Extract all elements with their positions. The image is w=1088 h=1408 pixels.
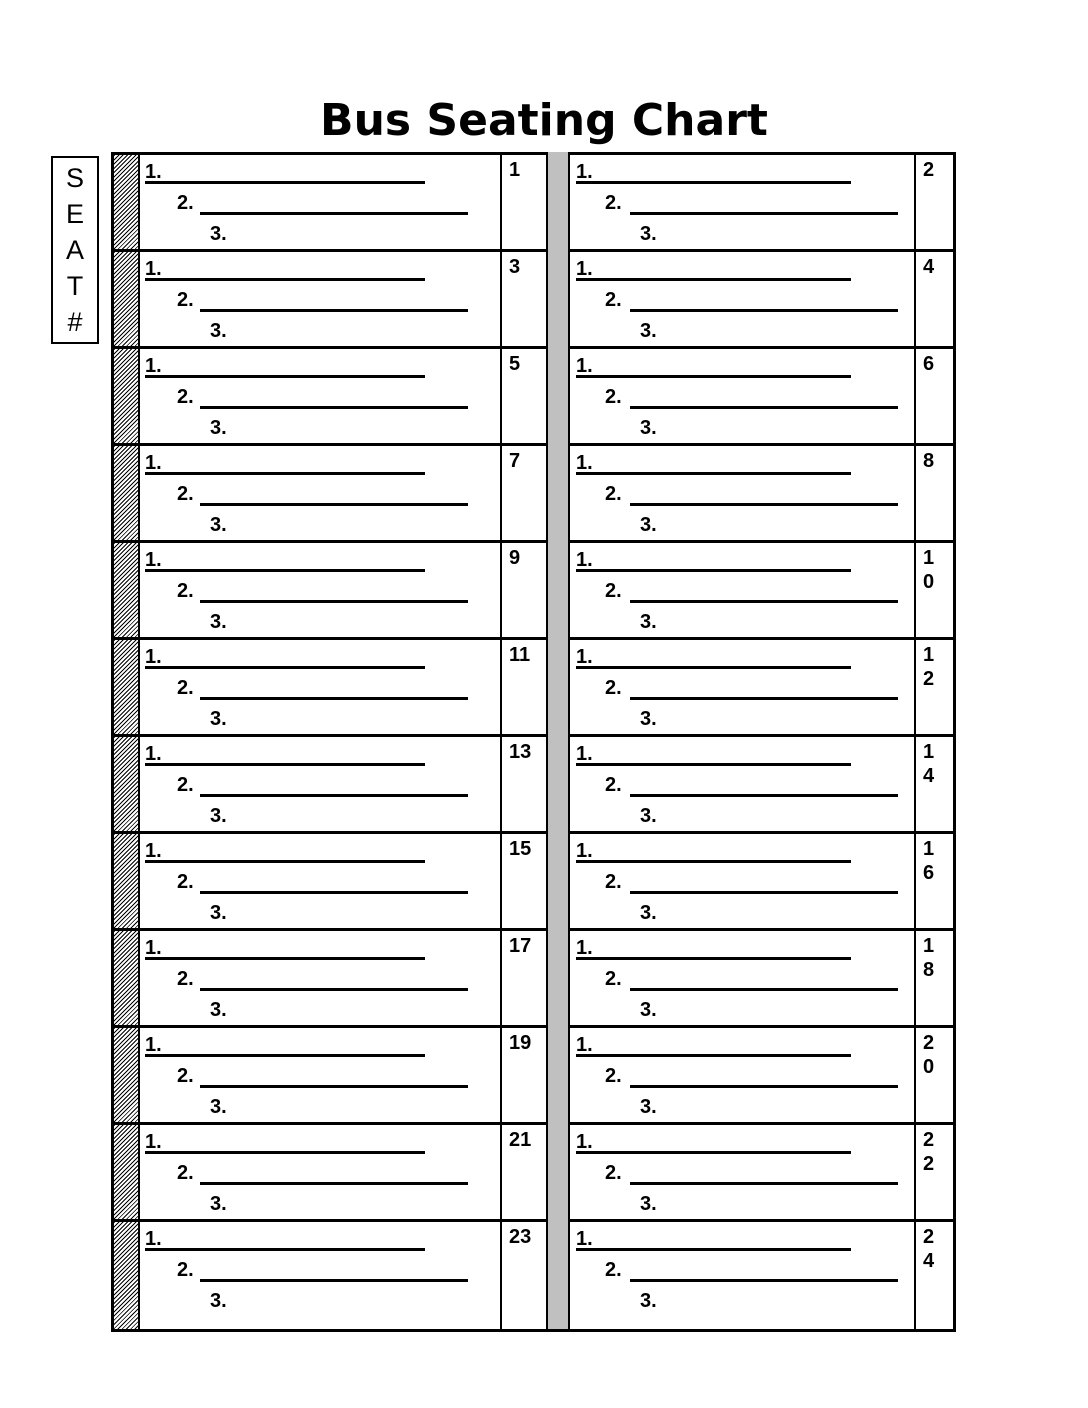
name-write-in-line[interactable]	[200, 309, 468, 312]
passenger-line-2: 2.	[568, 1256, 914, 1285]
bus-wall-hatch	[114, 349, 140, 443]
line-3-label: 3.	[210, 1190, 227, 1219]
seat-number-right: 20	[914, 1028, 953, 1122]
passenger-line-1: 1.	[568, 1225, 914, 1254]
passenger-line-3: 3.	[140, 414, 500, 443]
name-write-in-line[interactable]	[576, 1248, 851, 1251]
name-write-in-line[interactable]	[630, 891, 898, 894]
seat-number-right: 24	[914, 1222, 953, 1329]
name-write-in-line[interactable]	[630, 697, 898, 700]
passenger-line-2: 2.	[140, 189, 500, 218]
line-2-label: 2.	[605, 674, 622, 703]
line-2-label: 2.	[177, 868, 194, 897]
passenger-line-3: 3.	[568, 414, 914, 443]
seat-number-right: 12	[914, 640, 953, 734]
passenger-line-2: 2.	[568, 674, 914, 703]
seat-block-left: 1. 2. 3.	[140, 1028, 500, 1122]
name-write-in-line[interactable]	[145, 569, 425, 572]
seat-number-left: 1	[500, 155, 548, 249]
seat-block-left: 1. 2. 3.	[140, 931, 500, 1025]
line-2-label: 2.	[605, 1062, 622, 1091]
line-2-label: 2.	[177, 965, 194, 994]
seat-row: 1. 2. 3. 15 1. 2. 3.	[114, 834, 953, 931]
seat-row: 1. 2. 3. 11 1. 2. 3.	[114, 640, 953, 737]
name-write-in-line[interactable]	[576, 957, 851, 960]
seat-number-value: 2	[923, 158, 937, 182]
seat-number-value: 22	[923, 1128, 937, 1176]
passenger-line-3: 3.	[140, 705, 500, 734]
name-write-in-line[interactable]	[145, 181, 425, 184]
seat-block-left: 1. 2. 3.	[140, 349, 500, 443]
name-write-in-line[interactable]	[576, 666, 851, 669]
bus-wall-hatch	[114, 1222, 140, 1329]
seat-number-value: 19	[509, 1031, 543, 1055]
line-3-label: 3.	[640, 414, 657, 443]
seat-block-right: 1. 2. 3.	[568, 1222, 914, 1329]
seat-number-left: 3	[500, 252, 548, 346]
bus-wall-hatch	[114, 543, 140, 637]
seat-number-left: 13	[500, 737, 548, 831]
seat-block-right: 1. 2. 3.	[568, 155, 914, 249]
line-3-label: 3.	[210, 511, 227, 540]
seat-number-right: 6	[914, 349, 953, 443]
passenger-line-2: 2.	[140, 868, 500, 897]
seat-number-right: 4	[914, 252, 953, 346]
bus-wall-hatch	[114, 155, 140, 249]
passenger-line-3: 3.	[568, 802, 914, 831]
seat-rows-container: 1. 2. 3. 1 1. 2. 3.	[114, 155, 953, 1329]
name-write-in-line[interactable]	[200, 503, 468, 506]
seat-row: 1. 2. 3. 23 1. 2. 3.	[114, 1222, 953, 1329]
bus-wall-hatch	[114, 834, 140, 928]
seat-number-right: 14	[914, 737, 953, 831]
name-write-in-line[interactable]	[200, 1182, 468, 1185]
seat-number-left: 11	[500, 640, 548, 734]
seat-block-left: 1. 2. 3.	[140, 1125, 500, 1219]
seat-row: 1. 2. 3. 13 1. 2. 3.	[114, 737, 953, 834]
name-write-in-line[interactable]	[145, 763, 425, 766]
line-3-label: 3.	[640, 705, 657, 734]
seat-block-left: 1. 2. 3.	[140, 1222, 500, 1329]
seat-number-value: 3	[509, 255, 543, 279]
passenger-line-1: 1.	[140, 1031, 500, 1060]
name-write-in-line[interactable]	[630, 1279, 898, 1282]
seat-number-value: 20	[923, 1031, 937, 1079]
passenger-line-3: 3.	[568, 1287, 914, 1316]
passenger-line-1: 1.	[140, 643, 500, 672]
page-title: Bus Seating Chart	[0, 95, 1088, 147]
passenger-line-1: 1.	[568, 1128, 914, 1157]
seat-number-value: 16	[923, 837, 937, 885]
line-3-label: 3.	[640, 996, 657, 1025]
bus-wall-hatch	[114, 1125, 140, 1219]
seat-number-value: 6	[923, 352, 937, 376]
seat-block-right: 1. 2. 3.	[568, 543, 914, 637]
seat-number-left: 23	[500, 1222, 548, 1329]
seat-block-left: 1. 2. 3.	[140, 446, 500, 540]
line-2-label: 2.	[177, 1062, 194, 1091]
line-3-label: 3.	[210, 1093, 227, 1122]
seat-number-value: 5	[509, 352, 543, 376]
line-2-label: 2.	[177, 1159, 194, 1188]
seat-row: 1. 2. 3. 3 1. 2. 3.	[114, 252, 953, 349]
line-3-label: 3.	[210, 899, 227, 928]
name-write-in-line[interactable]	[576, 278, 851, 281]
name-write-in-line[interactable]	[630, 794, 898, 797]
name-write-in-line[interactable]	[200, 794, 468, 797]
name-write-in-line[interactable]	[630, 212, 898, 215]
seat-number-value: 9	[509, 546, 543, 570]
line-2-label: 2.	[177, 383, 194, 412]
passenger-line-2: 2.	[140, 1062, 500, 1091]
passenger-line-1: 1.	[568, 934, 914, 963]
passenger-line-1: 1.	[568, 158, 914, 187]
bus-wall-hatch	[114, 640, 140, 734]
seat-block-left: 1. 2. 3.	[140, 252, 500, 346]
line-2-label: 2.	[605, 480, 622, 509]
passenger-line-1: 1.	[140, 934, 500, 963]
seat-block-left: 1. 2. 3.	[140, 834, 500, 928]
line-2-label: 2.	[605, 383, 622, 412]
line-2-label: 2.	[177, 771, 194, 800]
passenger-line-1: 1.	[140, 1128, 500, 1157]
seat-number-right: 16	[914, 834, 953, 928]
passenger-line-2: 2.	[568, 965, 914, 994]
line-2-label: 2.	[605, 1159, 622, 1188]
bus-wall-hatch	[114, 737, 140, 831]
passenger-line-3: 3.	[140, 1093, 500, 1122]
name-write-in-line[interactable]	[630, 988, 898, 991]
line-3-label: 3.	[210, 802, 227, 831]
passenger-line-3: 3.	[140, 1287, 500, 1316]
seat-number-left: 9	[500, 543, 548, 637]
bus-aisle-strip	[546, 152, 570, 1329]
line-3-label: 3.	[640, 220, 657, 249]
line-3-label: 3.	[640, 608, 657, 637]
seat-block-left: 1. 2. 3.	[140, 640, 500, 734]
passenger-line-3: 3.	[568, 1093, 914, 1122]
passenger-line-3: 3.	[140, 608, 500, 637]
seat-number-left: 15	[500, 834, 548, 928]
seat-number-left: 19	[500, 1028, 548, 1122]
passenger-line-1: 1.	[140, 837, 500, 866]
name-write-in-line[interactable]	[576, 763, 851, 766]
seat-row: 1. 2. 3. 1 1. 2. 3.	[114, 155, 953, 252]
name-write-in-line[interactable]	[576, 860, 851, 863]
passenger-line-2: 2.	[568, 1062, 914, 1091]
name-write-in-line[interactable]	[576, 181, 851, 184]
seat-block-right: 1. 2. 3.	[568, 1125, 914, 1219]
passenger-line-2: 2.	[140, 286, 500, 315]
bus-wall-hatch	[114, 446, 140, 540]
name-write-in-line[interactable]	[145, 472, 425, 475]
seat-number-value: 10	[923, 546, 937, 594]
seat-number-left: 5	[500, 349, 548, 443]
seat-block-left: 1. 2. 3.	[140, 155, 500, 249]
seat-block-left: 1. 2. 3.	[140, 737, 500, 831]
line-2-label: 2.	[177, 480, 194, 509]
name-write-in-line[interactable]	[145, 666, 425, 669]
line-2-label: 2.	[177, 189, 194, 218]
line-3-label: 3.	[210, 317, 227, 346]
seat-number-value: 23	[509, 1225, 543, 1249]
seat-number-value: 7	[509, 449, 543, 473]
passenger-line-2: 2.	[140, 1159, 500, 1188]
passenger-line-2: 2.	[568, 1159, 914, 1188]
seat-number-right: 10	[914, 543, 953, 637]
name-write-in-line[interactable]	[576, 1054, 851, 1057]
passenger-line-1: 1.	[568, 546, 914, 575]
seat-block-right: 1. 2. 3.	[568, 349, 914, 443]
seat-number-left: 7	[500, 446, 548, 540]
seat-number-legend-label: SEAT#	[63, 160, 87, 340]
passenger-line-1: 1.	[140, 158, 500, 187]
name-write-in-line[interactable]	[576, 472, 851, 475]
line-3-label: 3.	[210, 996, 227, 1025]
name-write-in-line[interactable]	[200, 1085, 468, 1088]
name-write-in-line[interactable]	[576, 375, 851, 378]
passenger-line-2: 2.	[568, 480, 914, 509]
passenger-line-1: 1.	[568, 1031, 914, 1060]
seat-block-right: 1. 2. 3.	[568, 737, 914, 831]
passenger-line-3: 3.	[140, 899, 500, 928]
line-2-label: 2.	[177, 286, 194, 315]
line-2-label: 2.	[605, 771, 622, 800]
seat-block-left: 1. 2. 3.	[140, 543, 500, 637]
passenger-line-1: 1.	[140, 740, 500, 769]
seat-number-value: 11	[509, 643, 543, 667]
passenger-line-3: 3.	[140, 511, 500, 540]
passenger-line-1: 1.	[140, 449, 500, 478]
name-write-in-line[interactable]	[145, 1248, 425, 1251]
passenger-line-1: 1.	[140, 1225, 500, 1254]
passenger-line-2: 2.	[568, 189, 914, 218]
line-2-label: 2.	[605, 868, 622, 897]
name-write-in-line[interactable]	[200, 406, 468, 409]
line-2-label: 2.	[605, 189, 622, 218]
line-3-label: 3.	[640, 802, 657, 831]
seat-block-right: 1. 2. 3.	[568, 931, 914, 1025]
line-3-label: 3.	[640, 317, 657, 346]
line-2-label: 2.	[605, 577, 622, 606]
seat-number-value: 1	[509, 158, 543, 182]
line-3-label: 3.	[210, 1287, 227, 1316]
seat-number-value: 14	[923, 740, 937, 788]
name-write-in-line[interactable]	[200, 1279, 468, 1282]
seat-number-value: 18	[923, 934, 937, 982]
name-write-in-line[interactable]	[200, 212, 468, 215]
passenger-line-2: 2.	[140, 383, 500, 412]
line-3-label: 3.	[640, 511, 657, 540]
passenger-line-2: 2.	[568, 771, 914, 800]
passenger-line-1: 1.	[568, 740, 914, 769]
passenger-line-3: 3.	[568, 317, 914, 346]
line-2-label: 2.	[177, 577, 194, 606]
name-write-in-line[interactable]	[145, 957, 425, 960]
seat-number-left: 17	[500, 931, 548, 1025]
name-write-in-line[interactable]	[145, 1054, 425, 1057]
line-2-label: 2.	[177, 674, 194, 703]
passenger-line-1: 1.	[568, 449, 914, 478]
seat-number-left: 21	[500, 1125, 548, 1219]
passenger-line-1: 1.	[568, 837, 914, 866]
passenger-line-3: 3.	[140, 220, 500, 249]
passenger-line-3: 3.	[140, 317, 500, 346]
seat-block-right: 1. 2. 3.	[568, 446, 914, 540]
line-3-label: 3.	[640, 1093, 657, 1122]
seat-block-right: 1. 2. 3.	[568, 640, 914, 734]
seat-row: 1. 2. 3. 7 1. 2. 3.	[114, 446, 953, 543]
passenger-line-2: 2.	[568, 383, 914, 412]
seat-number-value: 24	[923, 1225, 937, 1273]
seat-block-right: 1. 2. 3.	[568, 1028, 914, 1122]
name-write-in-line[interactable]	[200, 697, 468, 700]
passenger-line-3: 3.	[568, 608, 914, 637]
seat-number-value: 4	[923, 255, 937, 279]
bus-wall-hatch	[114, 1028, 140, 1122]
name-write-in-line[interactable]	[630, 1182, 898, 1185]
passenger-line-2: 2.	[568, 577, 914, 606]
passenger-line-3: 3.	[568, 996, 914, 1025]
seat-number-right: 18	[914, 931, 953, 1025]
seating-chart-table: 1. 2. 3. 1 1. 2. 3.	[111, 152, 956, 1332]
name-write-in-line[interactable]	[145, 278, 425, 281]
seat-number-value: 21	[509, 1128, 543, 1152]
seat-number-value: 15	[509, 837, 543, 861]
name-write-in-line[interactable]	[200, 988, 468, 991]
seat-row: 1. 2. 3. 9 1. 2. 3.	[114, 543, 953, 640]
line-3-label: 3.	[640, 1287, 657, 1316]
passenger-line-2: 2.	[568, 286, 914, 315]
line-2-label: 2.	[605, 286, 622, 315]
passenger-line-2: 2.	[140, 1256, 500, 1285]
passenger-line-2: 2.	[140, 577, 500, 606]
line-2-label: 2.	[177, 1256, 194, 1285]
seat-number-right: 8	[914, 446, 953, 540]
passenger-line-3: 3.	[568, 899, 914, 928]
seat-number-value: 17	[509, 934, 543, 958]
line-3-label: 3.	[210, 608, 227, 637]
seat-row: 1. 2. 3. 21 1. 2. 3.	[114, 1125, 953, 1222]
name-write-in-line[interactable]	[630, 600, 898, 603]
passenger-line-1: 1.	[140, 255, 500, 284]
line-3-label: 3.	[640, 1190, 657, 1219]
name-write-in-line[interactable]	[630, 503, 898, 506]
name-write-in-line[interactable]	[200, 600, 468, 603]
passenger-line-3: 3.	[568, 1190, 914, 1219]
passenger-line-1: 1.	[568, 643, 914, 672]
name-write-in-line[interactable]	[576, 1151, 851, 1154]
name-write-in-line[interactable]	[630, 309, 898, 312]
name-write-in-line[interactable]	[145, 1151, 425, 1154]
line-3-label: 3.	[640, 899, 657, 928]
passenger-line-3: 3.	[140, 802, 500, 831]
line-2-label: 2.	[605, 965, 622, 994]
seat-number-value: 8	[923, 449, 937, 473]
line-3-label: 3.	[210, 414, 227, 443]
bus-wall-hatch	[114, 252, 140, 346]
line-3-label: 3.	[210, 705, 227, 734]
line-2-label: 2.	[605, 1256, 622, 1285]
seat-row: 1. 2. 3. 17 1. 2. 3.	[114, 931, 953, 1028]
bus-seating-chart-page: Bus Seating Chart SEAT# 1. 2. 3. 1	[0, 0, 1088, 1408]
name-write-in-line[interactable]	[630, 406, 898, 409]
seat-number-right: 22	[914, 1125, 953, 1219]
seat-number-legend-box: SEAT#	[51, 156, 99, 344]
passenger-line-2: 2.	[140, 480, 500, 509]
seat-number-value: 13	[509, 740, 543, 764]
name-write-in-line[interactable]	[145, 375, 425, 378]
passenger-line-3: 3.	[140, 996, 500, 1025]
name-write-in-line[interactable]	[200, 891, 468, 894]
seat-row: 1. 2. 3. 19 1. 2. 3.	[114, 1028, 953, 1125]
passenger-line-3: 3.	[568, 220, 914, 249]
name-write-in-line[interactable]	[630, 1085, 898, 1088]
passenger-line-2: 2.	[568, 868, 914, 897]
passenger-line-3: 3.	[140, 1190, 500, 1219]
line-3-label: 3.	[210, 220, 227, 249]
seat-number-right: 2	[914, 155, 953, 249]
name-write-in-line[interactable]	[576, 569, 851, 572]
seat-row: 1. 2. 3. 5 1. 2. 3.	[114, 349, 953, 446]
passenger-line-3: 3.	[568, 511, 914, 540]
passenger-line-1: 1.	[140, 352, 500, 381]
seat-block-right: 1. 2. 3.	[568, 252, 914, 346]
passenger-line-2: 2.	[140, 771, 500, 800]
passenger-line-1: 1.	[140, 546, 500, 575]
name-write-in-line[interactable]	[145, 860, 425, 863]
passenger-line-3: 3.	[568, 705, 914, 734]
seat-number-value: 12	[923, 643, 937, 691]
passenger-line-1: 1.	[568, 255, 914, 284]
passenger-line-2: 2.	[140, 965, 500, 994]
seat-block-right: 1. 2. 3.	[568, 834, 914, 928]
bus-wall-hatch	[114, 931, 140, 1025]
passenger-line-1: 1.	[568, 352, 914, 381]
passenger-line-2: 2.	[140, 674, 500, 703]
